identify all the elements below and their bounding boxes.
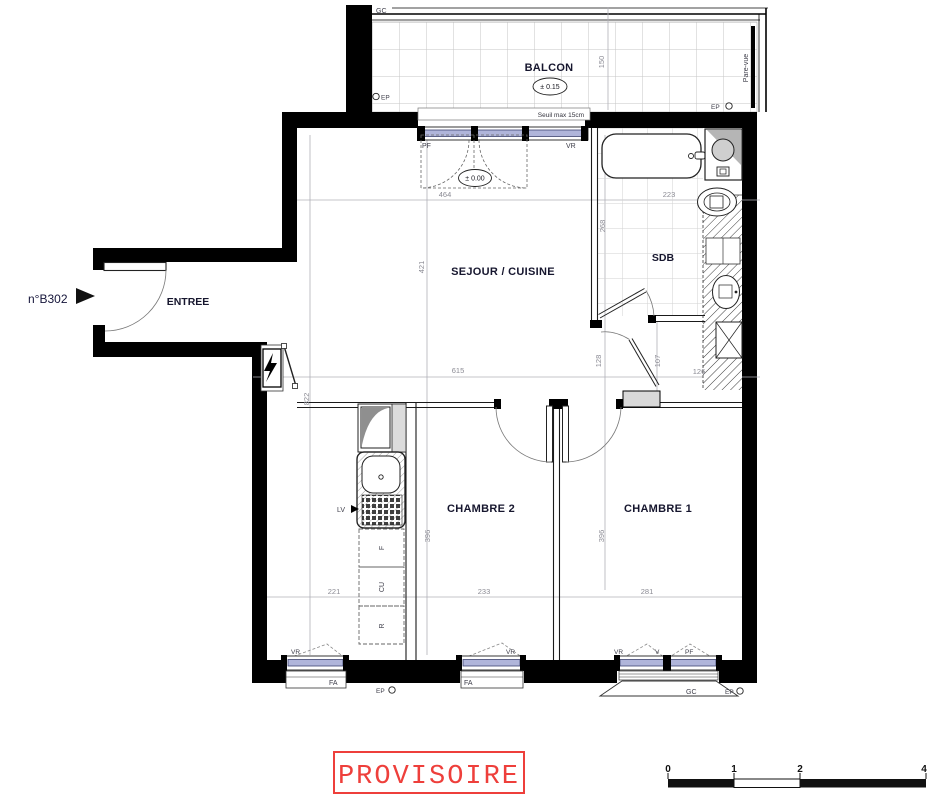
w3-glazing-l	[620, 660, 664, 667]
fa-label-w1: FA	[329, 680, 338, 687]
room-label-entree: ENTREE	[167, 296, 210, 308]
room-label-chambre2: CHAMBRE 2	[447, 503, 515, 515]
w1-jamb-r	[343, 655, 349, 671]
kitchen: LV F CU R	[337, 404, 406, 644]
level-balcony: ± 0.15	[540, 84, 560, 91]
w3-jamb-c	[663, 655, 671, 671]
wall-bottom-3	[524, 660, 617, 683]
panel-door	[284, 346, 296, 386]
floor-plan-page: GC Pare-vue 150 BALCON ± 0.15 EP EP	[0, 0, 932, 800]
bathroom: SDB	[597, 128, 742, 390]
bathtub-faucet-icon	[695, 152, 705, 159]
dim-464: 464	[439, 190, 452, 199]
dim-107: 107	[653, 355, 662, 368]
ep-label-bottom-left: EP	[376, 688, 385, 695]
appliance-cu-label: CU	[379, 582, 386, 592]
washbasin	[712, 139, 734, 161]
wall-right	[742, 112, 757, 683]
scale-seg-2	[734, 779, 800, 788]
panel-hinge-bottom	[293, 384, 298, 389]
balcony-window: Seuil max 15cm PF VR ± 0.00	[417, 108, 590, 188]
scale-seg-1	[668, 779, 734, 788]
dim-615: 615	[452, 366, 465, 375]
toilet-tank	[710, 196, 723, 208]
wall-sejour-left	[282, 112, 297, 262]
dim-822: 822	[302, 393, 311, 406]
ep-drain-icon-bottom-right	[737, 688, 743, 694]
w3-sill	[619, 671, 718, 680]
dim-233: 233	[478, 587, 491, 596]
vr-label-w1: VR	[291, 649, 300, 656]
wall-entree-top	[93, 248, 297, 262]
ep-drain-icon-top-left	[373, 93, 379, 99]
wall-balcony-left-block	[346, 5, 372, 115]
entrance-door-jamb-top	[93, 262, 105, 270]
lv-label: LV	[337, 507, 345, 514]
entrance-door-swing	[105, 270, 166, 331]
floor-plan-drawing: GC Pare-vue 150 BALCON ± 0.15 EP EP	[0, 0, 932, 800]
dim-421: 421	[417, 261, 426, 274]
ep-label-top-right: EP	[711, 104, 720, 111]
dim-268: 268	[598, 220, 607, 233]
ep-label-top-left: EP	[381, 95, 390, 102]
appliance-r-label: R	[379, 623, 386, 628]
w1-jamb-l	[281, 655, 287, 671]
gc-label-bottom: GC	[686, 689, 697, 696]
room-label-sdb: SDB	[652, 252, 675, 264]
w2-glazing	[463, 660, 520, 667]
dim-128: 128	[594, 355, 603, 368]
dim-396-ch2: 396	[423, 530, 432, 543]
pare-vue-screen	[751, 26, 755, 108]
window-kitchen: VR FA	[281, 644, 349, 688]
pf-label-top: PF	[422, 143, 431, 150]
gc-label-top: GC	[376, 8, 387, 15]
garde-corps	[600, 681, 738, 696]
wall-top-right	[585, 112, 757, 128]
w3-jamb-r	[716, 655, 722, 671]
level-interior: ± 0.00	[465, 176, 485, 183]
v-label-w3: V	[655, 649, 660, 656]
pf-label-w3: PF	[685, 649, 693, 656]
entrance-door-leaf	[104, 263, 166, 271]
pare-vue-label: Pare-vue	[743, 54, 750, 83]
radiator	[623, 391, 660, 407]
vr-label-top: VR	[566, 143, 576, 150]
chambre2-door-leaf	[547, 406, 553, 462]
entrance-door-jamb-bottom	[93, 325, 105, 342]
w2-jamb-r	[520, 655, 526, 671]
wall-entree-bottom	[93, 342, 267, 357]
ep-label-bottom-right: EP	[725, 689, 734, 696]
wall-left-lower	[252, 342, 267, 683]
scale-seg-3	[800, 779, 926, 788]
fa-label-w2: FA	[464, 680, 473, 687]
wall-bottom-4	[719, 660, 757, 683]
duct-basin-dot	[735, 291, 738, 294]
room-label-sejour: SEJOUR / CUISINE	[451, 266, 555, 278]
dim-150: 150	[597, 56, 606, 69]
seuil-note: Seuil max 15cm	[538, 112, 584, 119]
unit-number: n°B302	[28, 292, 68, 306]
chambre1-door-leaf	[563, 406, 569, 462]
w3-glazing-r	[670, 660, 716, 667]
dim-221: 221	[328, 587, 341, 596]
w1-glazing	[288, 660, 343, 667]
ep-drain-icon-top-right	[726, 103, 732, 109]
stamp-text: PROVISOIRE	[338, 762, 520, 792]
hob-counter-strip	[392, 404, 406, 452]
drainer-grid	[362, 495, 402, 525]
window-chambre1: VR V PF GC	[600, 644, 738, 696]
chambre2-door-swing	[496, 407, 551, 462]
hall-door-leaf	[629, 340, 656, 387]
vr-label-w2: VR	[506, 649, 515, 656]
provisoire-stamp: PROVISOIRE	[334, 752, 524, 793]
dim-396-ch1: 396	[597, 530, 606, 543]
window-glazing-top	[423, 130, 583, 137]
appliance-f-label: F	[379, 546, 386, 550]
bathtub	[602, 134, 701, 178]
window-chambre2: VR FA	[456, 643, 526, 688]
w2-jamb-l	[456, 655, 462, 671]
dim-223: 223	[663, 190, 676, 199]
vanity-tap-inner	[720, 169, 726, 174]
electrical-panel	[261, 344, 298, 392]
vr-label-w3: VR	[614, 649, 623, 656]
wall-bottom-2	[346, 660, 460, 683]
dim-281: 281	[641, 587, 654, 596]
chambre1-door-swing	[567, 407, 622, 462]
room-label-chambre1: CHAMBRE 1	[624, 503, 692, 515]
scale-bar: 0 1 2 4	[665, 764, 927, 788]
room-label-balcon: BALCON	[525, 62, 574, 74]
wall-top-left	[282, 112, 418, 128]
w3-jamb-l	[614, 655, 620, 671]
panel-hinge-top	[282, 344, 287, 349]
dim-126: 126	[693, 367, 706, 376]
unit-arrow-icon	[76, 288, 95, 304]
balcony: GC Pare-vue 150 BALCON ± 0.15 EP EP	[372, 7, 768, 112]
ep-drain-icon-bottom-left	[389, 687, 395, 693]
